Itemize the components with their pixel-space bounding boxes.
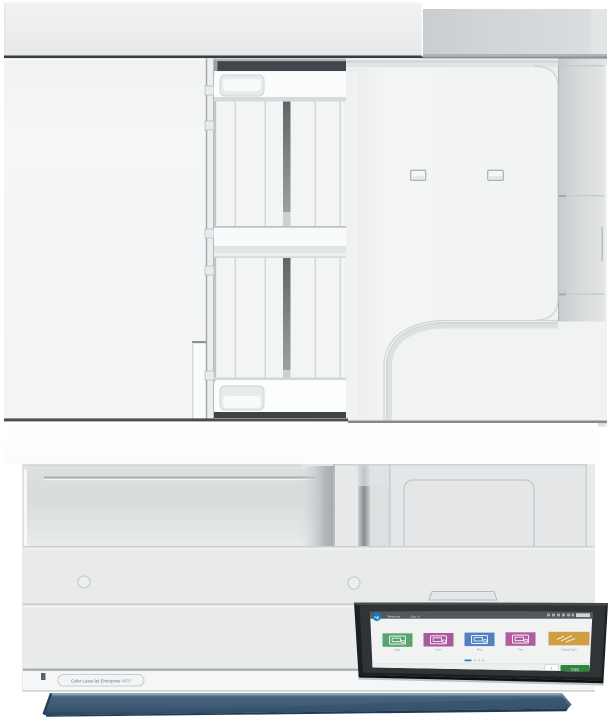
svg-text:Welcome: Welcome [388, 615, 401, 619]
svg-text:Sign In: Sign In [410, 615, 420, 619]
svg-text:Print: Print [477, 649, 482, 652]
svg-text:Support Tools: Support Tools [561, 649, 577, 652]
svg-text:hp: hp [374, 614, 379, 619]
svg-text:Copy: Copy [395, 649, 402, 652]
svg-text:1: 1 [551, 666, 553, 670]
svg-text:Copy: Copy [571, 668, 579, 672]
svg-text:Color LaserJet Enterprise MFP: Color LaserJet Enterprise MFP [71, 679, 131, 684]
svg-text:Scan: Scan [436, 649, 442, 652]
